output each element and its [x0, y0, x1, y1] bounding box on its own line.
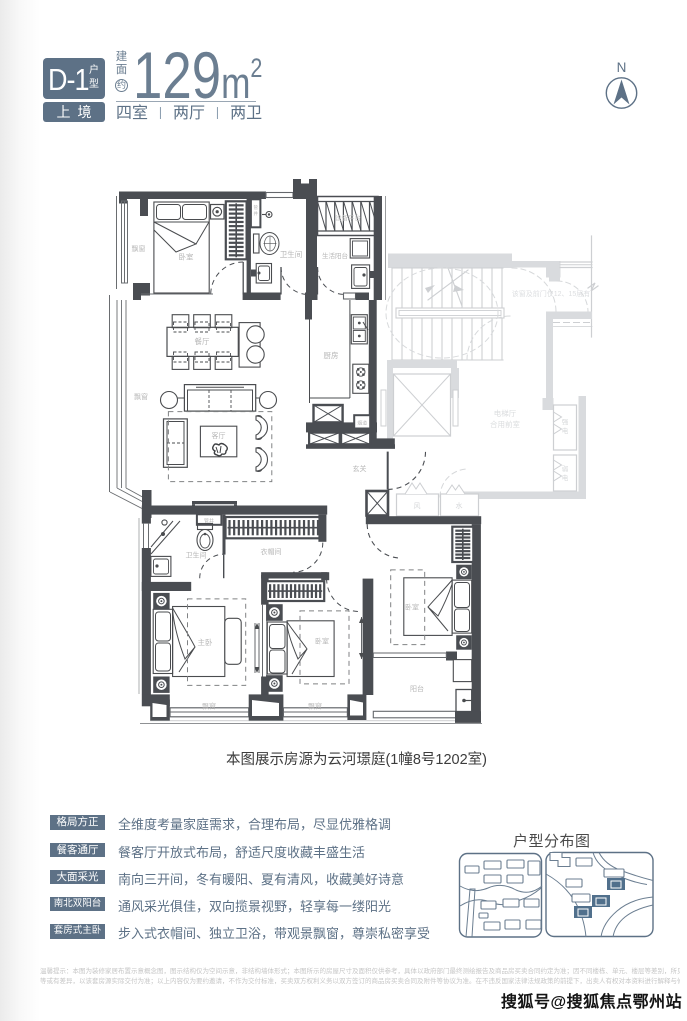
svg-text:搜狐号@搜狐焦点鄂州站: 搜狐号@搜狐焦点鄂州站: [501, 992, 682, 1011]
